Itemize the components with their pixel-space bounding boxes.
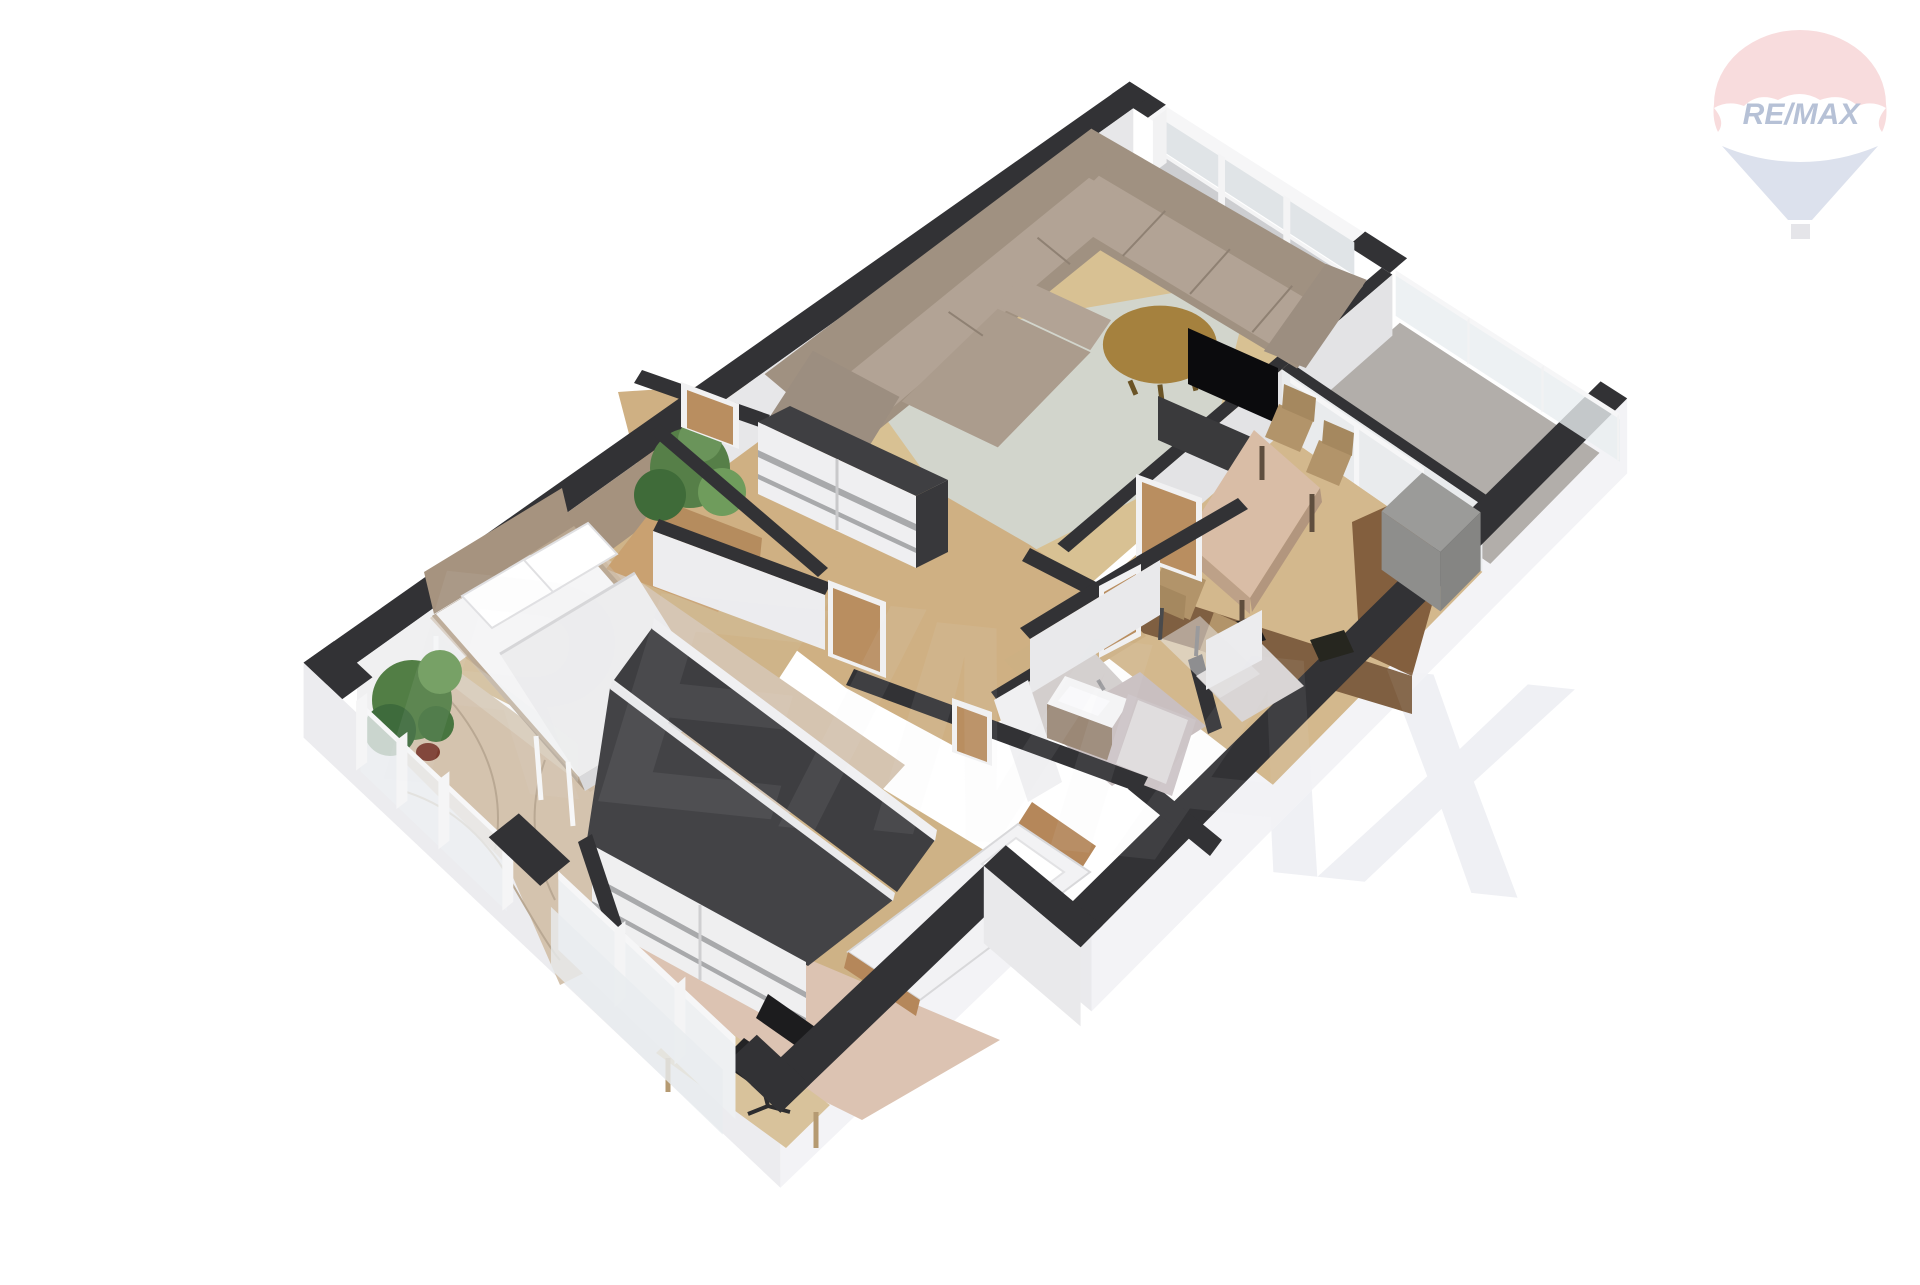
svg-text:RE/MAX: RE/MAX — [1743, 98, 1862, 131]
